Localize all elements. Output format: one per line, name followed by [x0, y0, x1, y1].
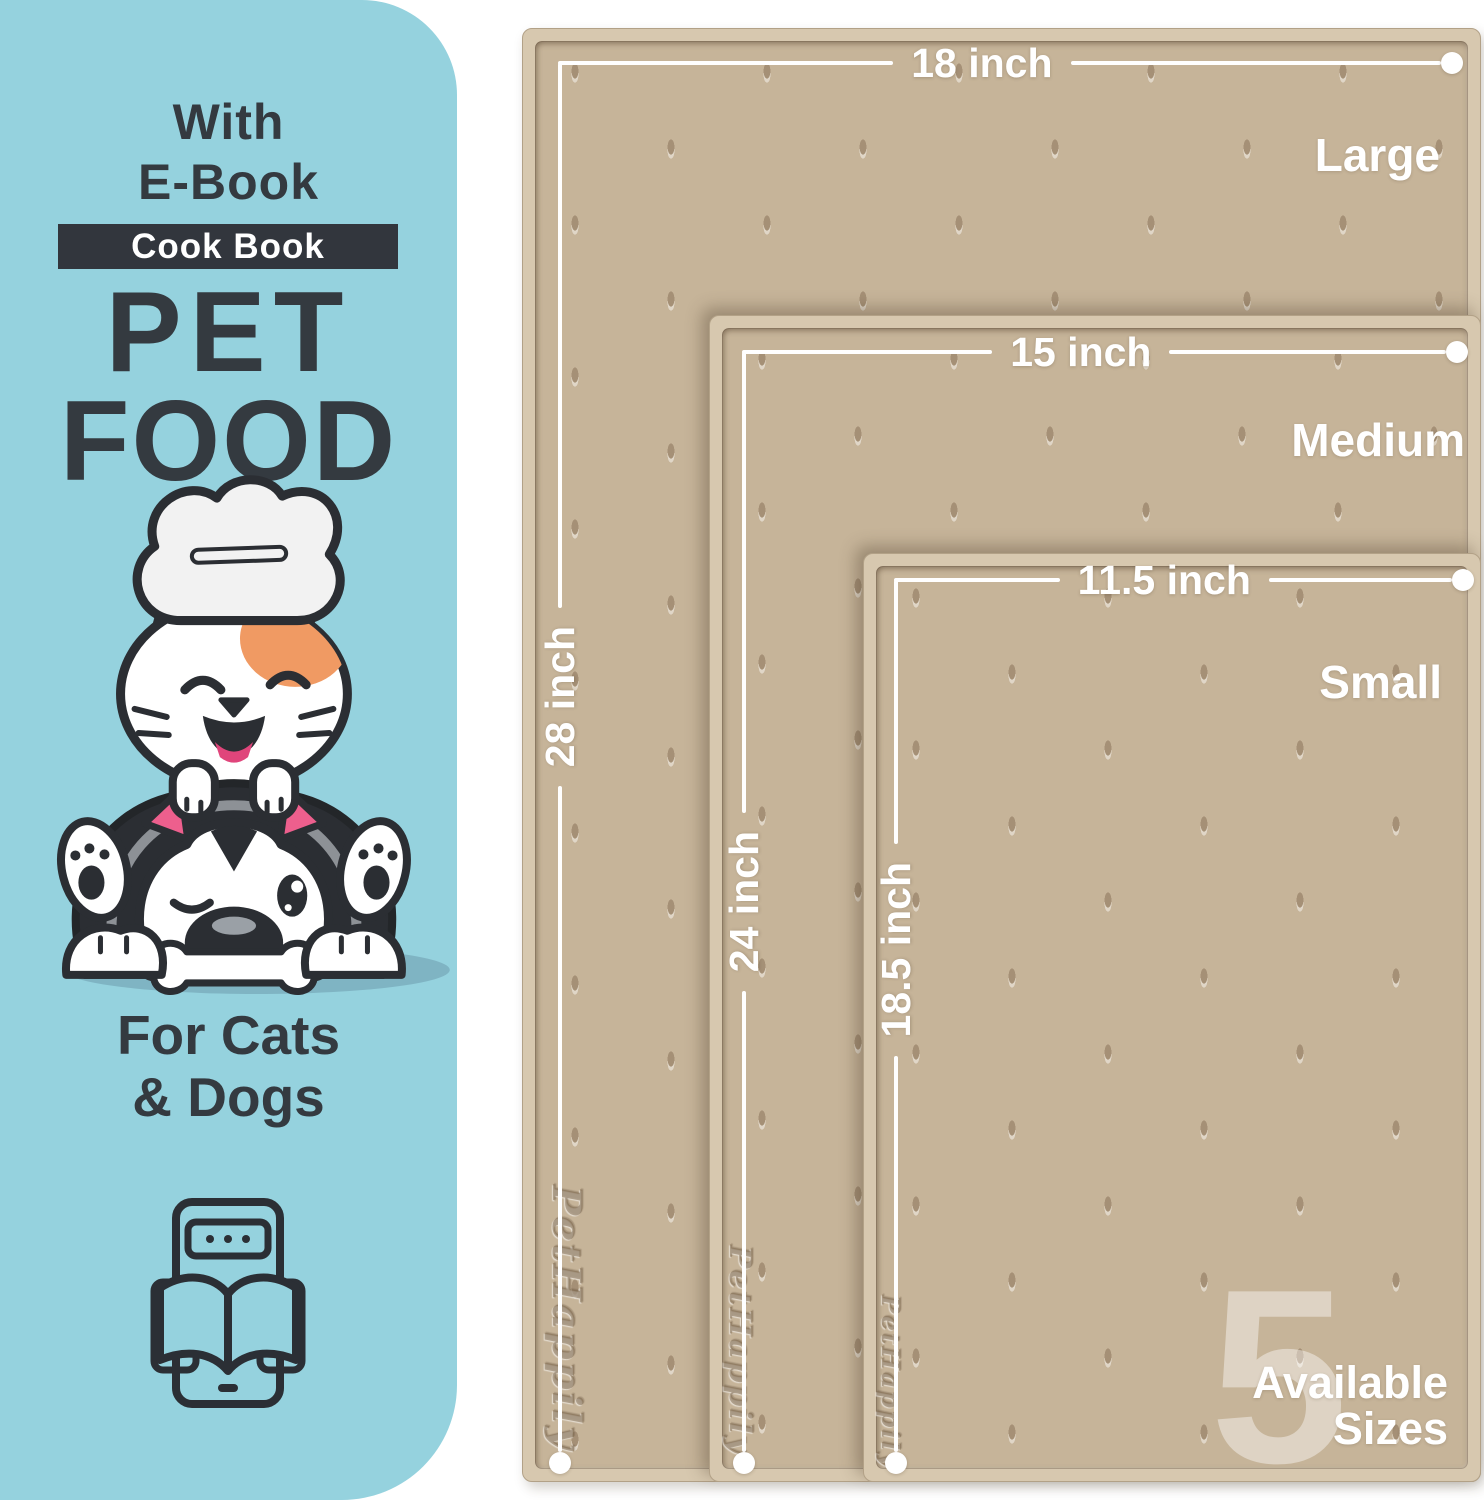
ebook-tablet-icon: [147, 1196, 309, 1410]
dimension-line: [558, 61, 893, 65]
size-name-small: Small: [1319, 655, 1442, 709]
dimension-line: [558, 63, 562, 608]
dimension-height-medium: 24 inch: [732, 352, 756, 1474]
dimension-width-large-label: 18 inch: [893, 40, 1070, 87]
dimension-line: [742, 352, 746, 813]
cat-chef-on-husky-illustration: [28, 468, 460, 1000]
product-infographic: With E-Book Cook Book PET FOOD: [0, 0, 1484, 1500]
dimension-line: [558, 786, 562, 1452]
available-sizes-note: Available Sizes: [1252, 1360, 1448, 1452]
dimension-line: [1071, 61, 1442, 65]
info-panel: With E-Book Cook Book PET FOOD: [0, 0, 457, 1500]
dimension-height-small-label: 18.5 inch: [873, 844, 920, 1055]
title-line1: PET: [0, 276, 457, 390]
dimension-line: [1269, 578, 1452, 582]
dimension-endpoint-dot: [549, 1452, 571, 1474]
dimension-height-small: 18.5 inch: [884, 580, 908, 1474]
headline-line1: With: [0, 92, 457, 152]
cookbook-badge: Cook Book: [58, 224, 398, 269]
dimension-line: [894, 1056, 898, 1452]
size-name-large: Large: [1315, 128, 1440, 182]
dimension-height-large-label: 28 inch: [537, 608, 584, 785]
dimension-line: [742, 991, 746, 1452]
dimension-line: [894, 580, 898, 844]
audience-text: For Cats & Dogs: [0, 1005, 457, 1128]
dimension-endpoint-dot: [1441, 52, 1463, 74]
size-name-medium: Medium: [1291, 413, 1465, 467]
dimension-width-small: 11.5 inch: [894, 568, 1474, 592]
dimension-endpoint-dot: [1452, 569, 1474, 591]
available-sizes-line2: Sizes: [1252, 1406, 1448, 1452]
available-sizes-line1: Available: [1252, 1360, 1448, 1406]
dimension-endpoint-dot: [1446, 341, 1468, 363]
audience-line1: For Cats: [0, 1005, 457, 1067]
headline-line2: E-Book: [0, 152, 457, 212]
dimension-line: [742, 350, 992, 354]
dimension-width-large: 18 inch: [558, 51, 1463, 75]
dimension-height-large: 28 inch: [548, 63, 572, 1474]
product-title: PET FOOD: [0, 276, 457, 495]
dimension-height-medium-label: 24 inch: [721, 813, 768, 990]
dimension-line: [1169, 350, 1446, 354]
dimension-endpoint-dot: [733, 1452, 755, 1474]
dimension-width-medium-label: 15 inch: [992, 329, 1169, 376]
headline: With E-Book: [0, 92, 457, 212]
dimension-endpoint-dot: [885, 1452, 907, 1474]
dimension-width-medium: 15 inch: [742, 340, 1468, 364]
audience-line2: & Dogs: [0, 1067, 457, 1129]
dimension-line: [894, 578, 1060, 582]
dimension-width-small-label: 11.5 inch: [1060, 557, 1269, 604]
